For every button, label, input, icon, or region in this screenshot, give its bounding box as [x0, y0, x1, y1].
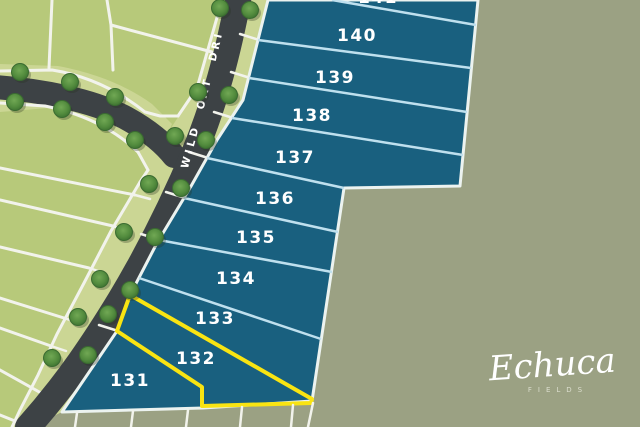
lot-label-136[interactable]: 136 [255, 189, 295, 209]
lot-label-134[interactable]: 134 [216, 269, 256, 289]
lot-label-132[interactable]: 132 [176, 349, 216, 369]
estate-map-page: WILD OAT DRIVE 141 140 139 138 137 136 1… [0, 0, 640, 427]
lot-label-138[interactable]: 138 [292, 106, 332, 126]
lot-label-137[interactable]: 137 [275, 148, 315, 168]
lot-label-139[interactable]: 139 [315, 68, 355, 88]
lot-label-141[interactable]: 141 [358, 0, 398, 8]
estate-map: WILD OAT DRIVE 141 140 139 138 137 136 1… [0, 0, 640, 427]
logo-tagline-text: FIELDS [528, 386, 588, 394]
lot-label-131[interactable]: 131 [110, 371, 150, 391]
lot-label-135[interactable]: 135 [236, 228, 276, 248]
lot-label-140[interactable]: 140 [337, 26, 377, 46]
lot-label-133[interactable]: 133 [195, 309, 235, 329]
